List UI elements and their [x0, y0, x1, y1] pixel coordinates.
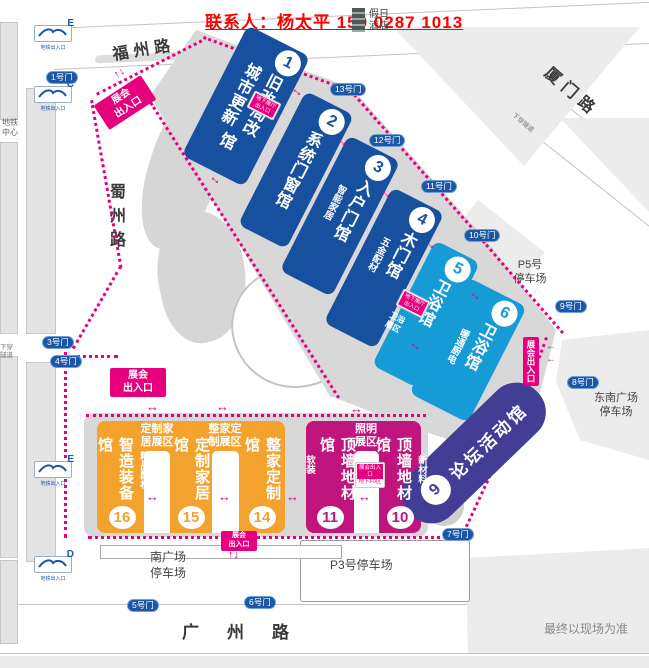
hall-14-number: 14	[249, 506, 276, 529]
metro-entrance-label: 地铁出入口	[35, 44, 71, 51]
metro-letter: E	[67, 454, 74, 465]
guangzhou-road-label: 广州路	[182, 618, 317, 643]
south-parking-label: 南广场停车场	[142, 550, 194, 581]
metro-wave-icon	[35, 87, 69, 100]
metro-entrance-D: D 地铁出入口	[34, 556, 72, 573]
bottom-sidewalk	[0, 656, 649, 668]
flow-arrow	[350, 402, 363, 415]
metro-wave-icon	[35, 26, 69, 39]
zone-lighting: 照明展区	[352, 423, 380, 448]
gate-5: 5号门	[127, 599, 159, 612]
sidewalk	[0, 560, 18, 644]
entrance-arrow	[546, 355, 556, 365]
p5-line1: P5号	[518, 259, 542, 271]
sidewalk	[26, 88, 56, 334]
gate-6: 6号门	[244, 596, 276, 609]
hall-10: 新材料顶墙地材馆 10	[379, 425, 421, 531]
sidewalk	[0, 142, 18, 334]
south-line2: 停车场	[150, 566, 186, 580]
flow-arrow	[218, 490, 231, 503]
expo-entrance-badge: 展会出入口	[94, 75, 157, 130]
route-dotted	[88, 536, 466, 539]
gate-10: 10号门	[464, 229, 500, 242]
metro-wave-icon	[35, 557, 69, 570]
entrance-arrows	[228, 550, 239, 561]
southeast-parking-label: 东南广场停车场	[588, 391, 644, 420]
expo-entrance-badge-vertical: 展会出入口	[523, 337, 539, 386]
hall-16-number: 16	[109, 506, 136, 529]
metro-entrance-C: C 地铁出入口	[34, 86, 72, 103]
footer-note: 最终以现场为准	[544, 620, 628, 637]
entrance-arrow	[546, 342, 556, 352]
gate-12: 12号门	[369, 134, 405, 147]
hotel-icon	[352, 8, 365, 32]
sidewalk	[0, 22, 18, 120]
metro-entrance-label: 地铁出入口	[35, 480, 71, 487]
hall-11-number: 11	[317, 506, 344, 529]
hall-16-name: 智造装备馆	[94, 437, 136, 506]
gate-11: 11号门	[421, 180, 457, 193]
hotel-label: 假日酒店	[369, 9, 391, 32]
sidewalk	[0, 356, 18, 558]
expo-l1: 展会	[112, 370, 164, 383]
hall-15-number: 15	[178, 506, 205, 529]
zone-whole-home: 整家定制展区	[204, 423, 246, 448]
metro-entrance-E2: E 地铁出入口	[34, 461, 72, 478]
south-line1: 南广场	[150, 550, 186, 564]
flow-arrow	[146, 490, 159, 503]
hall-10-number: 10	[387, 506, 414, 529]
contact-link[interactable]: 联系人：杨太平 159 0287 1013	[205, 8, 463, 33]
gate-8: 8号门	[567, 376, 599, 389]
metro-letter: C	[67, 79, 74, 90]
metro-letter: D	[67, 549, 74, 560]
zone-custom-home: 定制家居展区	[136, 423, 178, 448]
gate-4: 4号门	[50, 355, 82, 368]
metro-center-label: 地铁中心	[2, 118, 20, 137]
flow-arrow	[146, 400, 159, 413]
tunnel-label: 下穿隧道	[0, 344, 14, 360]
metro-entrance-label: 地铁出入口	[35, 575, 71, 582]
route-dotted	[72, 266, 122, 350]
gate-3: 3号门	[42, 336, 74, 349]
hall-14-name: 整家定制馆	[241, 437, 283, 506]
flow-arrow	[216, 400, 229, 413]
flow-arrow	[358, 490, 371, 503]
metro-entrance-label: 地铁出入口	[35, 105, 71, 112]
p5-parking-label: P5号停车场	[508, 258, 552, 287]
metro-entrance-E: E 地铁出入口	[34, 25, 72, 42]
expo-l2: 出入口	[112, 383, 164, 396]
metro-letter: E	[67, 18, 74, 29]
route-dotted	[64, 352, 67, 538]
hall-11: 顶墙地材馆软装 11	[308, 425, 352, 531]
venue-map: 1 旧改局改城市更新 馆 2 系统门窗馆 3 入户门馆智能家居 4 木门馆五金配…	[0, 0, 649, 668]
route-dotted	[86, 414, 426, 417]
gate-7: 7号门	[442, 528, 474, 541]
hall-11-side: 软装	[302, 455, 316, 506]
expo-l1: 展会	[222, 532, 256, 541]
gate-13: 13号门	[330, 83, 366, 96]
basement2-l2: 地下F9区	[357, 479, 383, 486]
se-line1: 东南广场	[594, 392, 638, 404]
expo-entrance-badge-small: 展会出入口	[221, 531, 257, 551]
se-line2: 停车场	[600, 406, 633, 418]
hall-10-side: 新材料	[414, 455, 428, 506]
p3-parking-label: P3号停车场	[330, 558, 393, 574]
basement2-l1: 展会出入口	[357, 464, 383, 479]
gate-9: 9号门	[555, 300, 587, 313]
flow-arrow	[286, 490, 299, 503]
expo-entrance-badge: 展会出入口	[110, 368, 166, 397]
metro-wave-icon	[35, 462, 69, 475]
basement-entrance-badge: 展会出入口 地下F9区	[355, 462, 385, 488]
